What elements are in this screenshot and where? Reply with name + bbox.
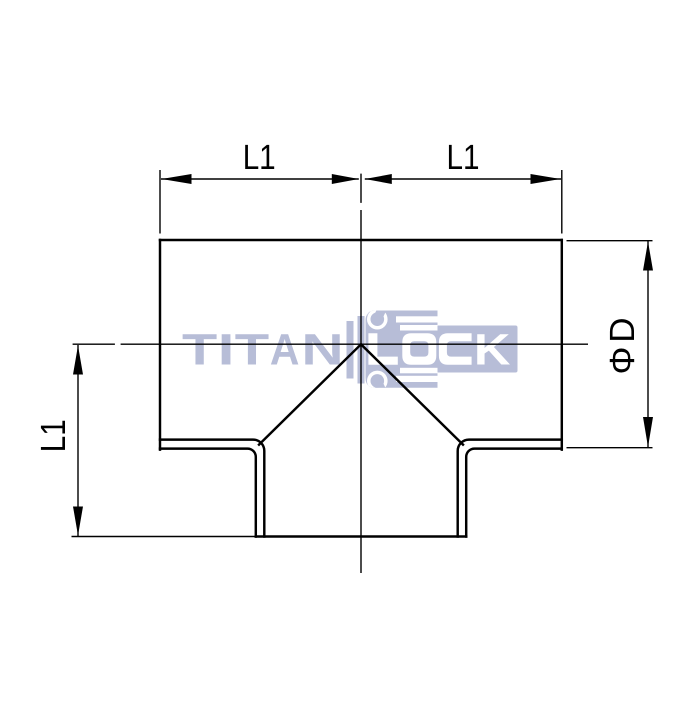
svg-text:L1: L1 xyxy=(447,138,480,177)
svg-text:I: I xyxy=(218,326,235,375)
svg-text:L1: L1 xyxy=(243,138,276,177)
svg-text:T: T xyxy=(235,326,270,375)
svg-text:L1: L1 xyxy=(34,419,73,452)
svg-text:A: A xyxy=(270,326,300,375)
svg-text:T: T xyxy=(182,326,217,375)
svg-text:K: K xyxy=(474,326,511,375)
